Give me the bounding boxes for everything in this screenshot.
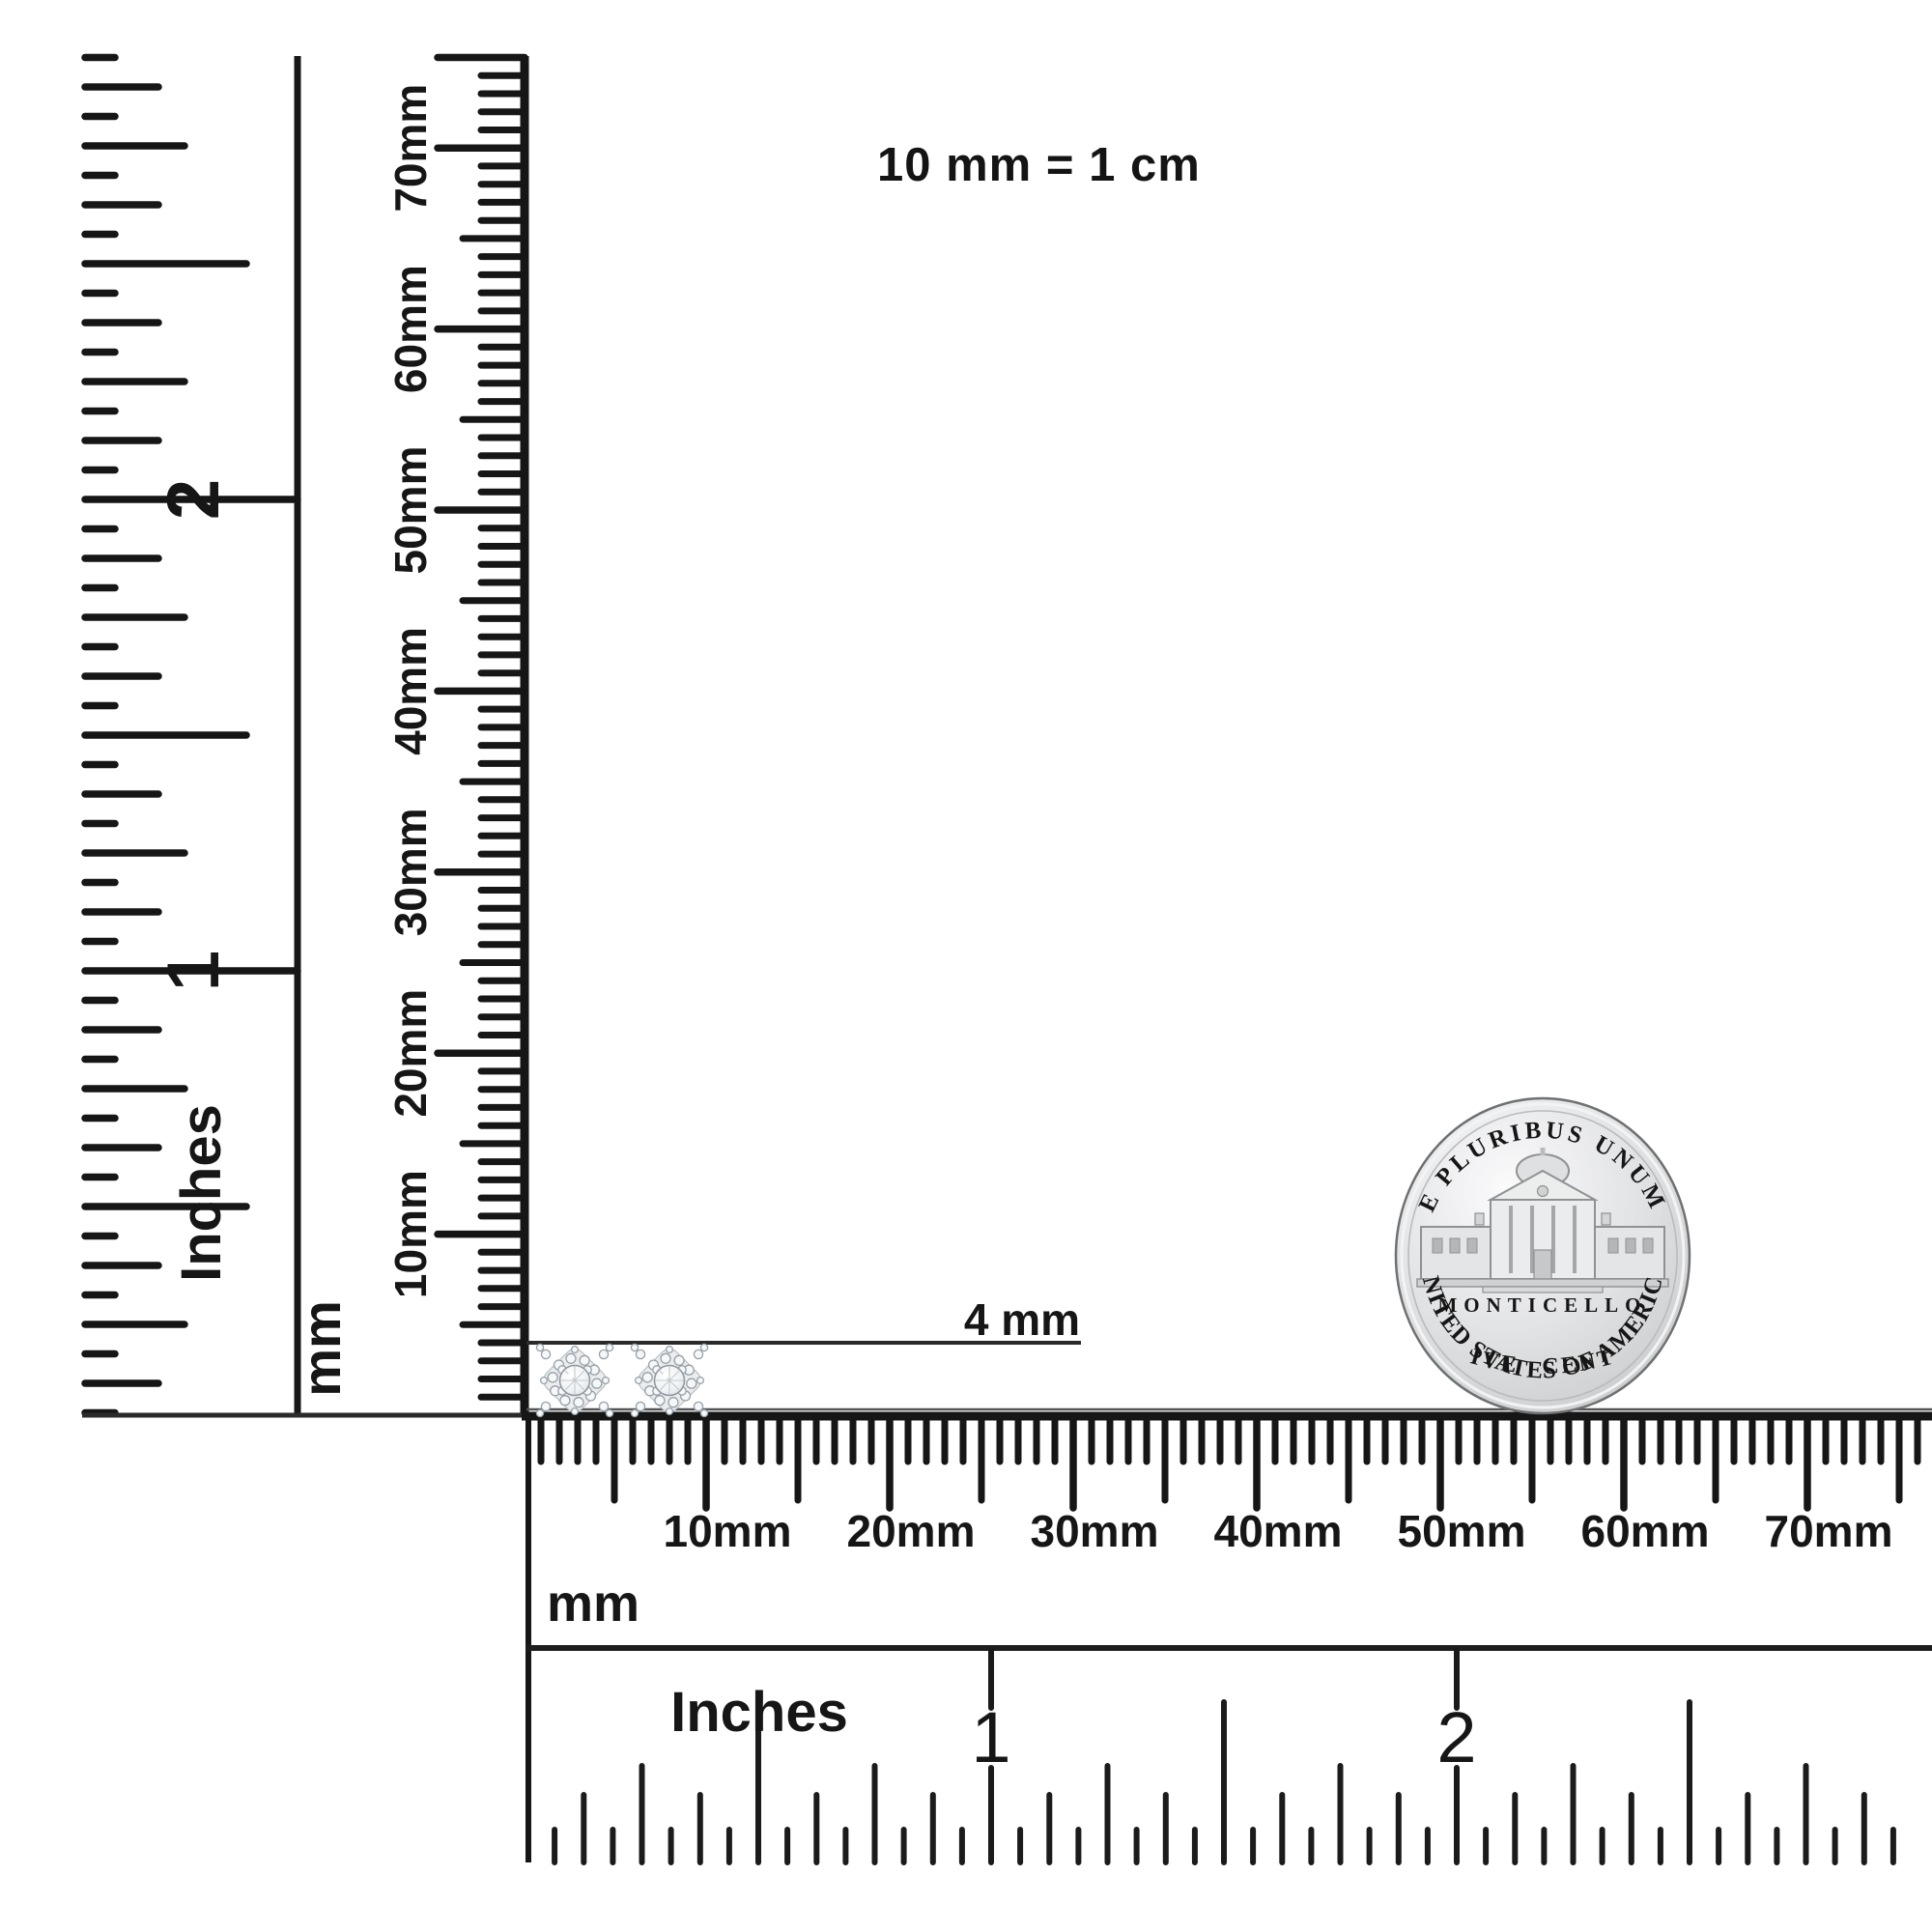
mm-label: 30mm xyxy=(385,808,436,936)
size-annotation: 4 mm xyxy=(526,1294,1081,1345)
pave-stone xyxy=(566,1353,576,1363)
pave-stone xyxy=(580,1355,589,1365)
mm-label: 10mm xyxy=(664,1506,792,1556)
coin-building-label: MONTICELLO xyxy=(1437,1293,1647,1317)
pave-stone xyxy=(548,1373,557,1382)
pave-stone xyxy=(560,1396,570,1406)
pave-stone xyxy=(687,1378,696,1388)
coin-denomination: FIVE CENTS xyxy=(0,0,1619,1379)
inches-unit-label: Inches xyxy=(670,1681,848,1744)
nickel-coin: E PLURIBUS UNUMUNITED STATES OF AMERICAF… xyxy=(0,0,1690,1413)
mm-label: 30mm xyxy=(1031,1506,1159,1556)
chimney xyxy=(1475,1213,1484,1225)
pave-stone xyxy=(636,1402,644,1410)
left-mm-ruler: 10mm20mm30mm40mm50mm60mm70mmmm xyxy=(291,56,525,1415)
mm-minor-ticks xyxy=(481,75,525,1397)
pave-stone xyxy=(599,1350,608,1358)
diamond-sparkle xyxy=(663,1373,668,1378)
inch-ticks-s2 xyxy=(85,264,246,1207)
pave-stone xyxy=(667,1408,673,1415)
diamond-sparkle xyxy=(568,1373,574,1378)
pave-stone xyxy=(536,1344,543,1350)
inches-unit-label: Inches xyxy=(170,1104,233,1282)
size-annotation-label: 4 mm xyxy=(964,1294,1080,1345)
pave-stone xyxy=(631,1409,638,1416)
pediment-window xyxy=(1538,1186,1548,1197)
pave-stone xyxy=(642,1373,652,1382)
window xyxy=(1626,1238,1635,1253)
pave-stone xyxy=(606,1344,612,1350)
pave-stone xyxy=(536,1409,543,1416)
pave-stone xyxy=(674,1355,684,1365)
pave-stone xyxy=(668,1398,678,1407)
earrings xyxy=(536,1344,707,1416)
pave-stone xyxy=(636,1378,642,1384)
inch-numeral: 1 xyxy=(153,951,235,991)
inch-numeral: 2 xyxy=(153,479,235,520)
mm-label: 70mm xyxy=(1765,1506,1893,1556)
pave-stone xyxy=(603,1378,610,1384)
mm-unit-label: mm xyxy=(291,1300,352,1397)
mm-label: 10mm xyxy=(385,1170,436,1298)
pave-stone xyxy=(655,1396,665,1406)
mm-label: 70mm xyxy=(385,84,436,213)
mm-label: 50mm xyxy=(385,446,436,575)
earring-1 xyxy=(536,1344,612,1416)
pave-stone xyxy=(694,1402,702,1410)
pave-stone xyxy=(697,1378,704,1384)
inch-numeral: 1 xyxy=(971,1697,1010,1777)
mm-major-ticks xyxy=(438,58,525,1235)
mm-unit-label: mm xyxy=(547,1575,639,1633)
dome-finial xyxy=(1541,1148,1546,1155)
pave-stone xyxy=(606,1409,612,1416)
pave-stone xyxy=(661,1353,670,1363)
pave-stone xyxy=(694,1350,702,1358)
window xyxy=(1450,1238,1460,1253)
window xyxy=(1608,1238,1618,1253)
pave-stone xyxy=(700,1409,707,1416)
pave-stone xyxy=(636,1350,644,1358)
pave-stone xyxy=(592,1378,602,1388)
window xyxy=(1433,1238,1442,1253)
pave-stone xyxy=(572,1347,579,1353)
left-inch-ruler: 12Inches xyxy=(85,56,298,1415)
mm-label: 20mm xyxy=(385,989,436,1118)
mm-label: 50mm xyxy=(1398,1506,1526,1556)
pave-stone xyxy=(700,1344,707,1350)
pave-stone xyxy=(667,1347,673,1353)
mm-label: 60mm xyxy=(385,265,436,393)
pave-stone xyxy=(541,1402,550,1410)
earring-2 xyxy=(631,1344,707,1416)
door xyxy=(1534,1250,1551,1279)
pave-stone xyxy=(599,1402,608,1410)
inch-numeral: 2 xyxy=(1436,1697,1476,1777)
steps xyxy=(1483,1287,1603,1293)
mm-label: 40mm xyxy=(1214,1506,1343,1556)
mm-label: 40mm xyxy=(385,627,436,755)
pave-stone xyxy=(572,1408,579,1415)
inch-ticks-half xyxy=(758,1702,1690,1862)
window xyxy=(1643,1238,1653,1253)
bottom-inch-ruler: 12Inches xyxy=(554,1651,1893,1862)
pave-stone xyxy=(541,1350,550,1358)
bottom-mm-ruler: 10mm20mm30mm40mm50mm60mm70mmmm xyxy=(541,1419,1918,1633)
pave-stone xyxy=(574,1398,583,1407)
pave-stone xyxy=(541,1378,548,1384)
pave-stone xyxy=(631,1344,638,1350)
scale-diagram: 12Inches10mm20mm30mm40mm50mm60mm70mmmm10… xyxy=(0,0,1932,1932)
window xyxy=(1467,1238,1477,1253)
ruler-frame-lines xyxy=(82,1409,1932,1862)
mm-label: 60mm xyxy=(1581,1506,1710,1556)
chimney xyxy=(1602,1213,1610,1225)
mm-minor-ticks xyxy=(541,1419,1918,1462)
product-scale-image: 10 mm = 1 cm 12Inches10mm20mm30mm40mm50m… xyxy=(0,0,1932,1932)
mm-label: 20mm xyxy=(847,1506,976,1556)
coin-denomination-text: FIVE CENTS xyxy=(0,0,1619,1379)
base-terrace xyxy=(1417,1279,1668,1287)
